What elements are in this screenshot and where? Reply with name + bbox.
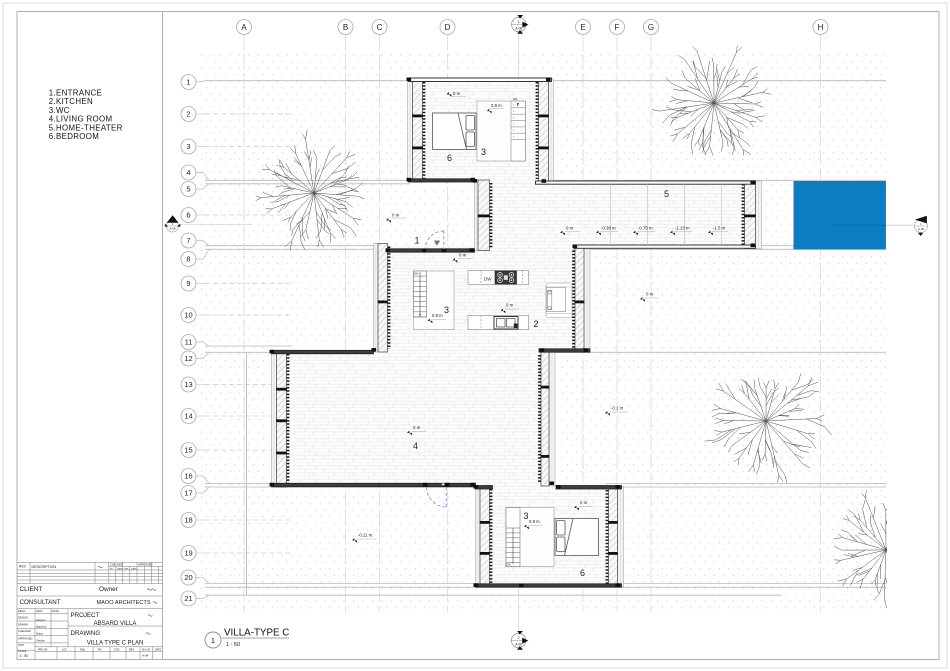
svg-text:1.ENTRANCE: 1.ENTRANCE — [49, 88, 102, 97]
svg-text:SIGN: SIGN — [36, 609, 42, 613]
svg-text:2.KITCHEN: 2.KITCHEN — [49, 97, 93, 106]
svg-text:D: D — [445, 23, 451, 32]
svg-text:16: 16 — [184, 472, 192, 481]
svg-text:7: 7 — [186, 236, 190, 245]
svg-text:APPROVED: APPROVED — [138, 563, 153, 567]
svg-text:2: 2 — [186, 110, 190, 119]
svg-text:DRAWING: DRAWING — [71, 630, 101, 637]
svg-text:MAOO ARCHITECTS: MAOO ARCHITECTS — [97, 600, 151, 606]
svg-text:3: 3 — [186, 142, 190, 151]
svg-text:4: 4 — [413, 441, 418, 451]
svg-text:12: 12 — [184, 354, 192, 363]
svg-text:4: 4 — [186, 168, 190, 177]
svg-text:0.9 m: 0.9 m — [432, 313, 443, 318]
svg-text:F: F — [615, 23, 620, 32]
svg-text:Approved: Approved — [36, 626, 47, 629]
svg-text:VILLA-TYPE C: VILLA-TYPE C — [224, 628, 289, 639]
svg-text:ABSARD VILLA: ABSARD VILLA — [94, 621, 137, 627]
svg-text:21: 21 — [184, 594, 192, 603]
svg-text:0 m: 0 m — [413, 425, 421, 430]
svg-text:0 m: 0 m — [453, 91, 461, 96]
svg-text:PROJECT: PROJECT — [71, 612, 100, 619]
svg-text:3: 3 — [481, 147, 486, 157]
svg-text:18: 18 — [184, 516, 192, 525]
svg-text:DW: DW — [484, 277, 492, 282]
svg-text:DN: DN — [414, 272, 418, 276]
svg-text:0 m: 0 m — [392, 213, 400, 218]
svg-text:13: 13 — [184, 380, 192, 389]
svg-text:Designer: Designer — [36, 619, 46, 622]
svg-text:A-08: A-08 — [918, 227, 924, 231]
svg-text:5: 5 — [186, 185, 190, 194]
svg-text:CHECKED: CHECKED — [18, 629, 31, 633]
svg-text:A-08: A-08 — [170, 227, 176, 231]
svg-text:Owner: Owner — [99, 586, 119, 593]
svg-text:B: B — [343, 23, 348, 32]
svg-text:11: 11 — [185, 338, 193, 347]
svg-text:5: 5 — [664, 189, 669, 199]
svg-text:2: 2 — [534, 319, 539, 329]
svg-text:6.BEDROOM: 6.BEDROOM — [49, 132, 100, 141]
svg-text:PH: PH — [98, 648, 102, 651]
svg-text:1: 1 — [186, 78, 190, 87]
svg-text:6: 6 — [580, 568, 585, 578]
svg-text:2: 2 — [518, 636, 520, 640]
svg-text:DN: DN — [513, 97, 517, 101]
svg-text:-0.1 m: -0.1 m — [611, 406, 624, 411]
svg-text:DESCRIPTION: DESCRIPTION — [32, 565, 57, 569]
svg-text:1 : 50: 1 : 50 — [20, 654, 29, 658]
svg-text:5.HOME-THEATER: 5.HOME-THEATER — [49, 123, 123, 132]
svg-text:0 m: 0 m — [566, 226, 574, 231]
svg-text:-0.38 m: -0.38 m — [601, 226, 616, 231]
svg-text:SH. NO: SH. NO — [142, 648, 150, 651]
svg-text:0 m: 0 m — [459, 252, 467, 257]
svg-text:-1.5 m: -1.5 m — [713, 226, 726, 231]
svg-text:0 m: 0 m — [580, 500, 588, 505]
svg-text:A: A — [241, 23, 247, 32]
svg-text:CHECKED: CHECKED — [110, 563, 123, 567]
svg-text:14: 14 — [184, 412, 192, 421]
svg-text:COD: COD — [114, 648, 120, 651]
svg-text:VILLA TYPE C PLAN: VILLA TYPE C PLAN — [87, 641, 144, 647]
svg-text:3: 3 — [524, 511, 529, 521]
svg-text:A-04: A-04 — [142, 654, 149, 658]
svg-text:A-08: A-08 — [515, 643, 522, 647]
svg-text:1 : 50: 1 : 50 — [226, 642, 240, 648]
svg-text:0 m: 0 m — [506, 303, 514, 308]
svg-text:SCALE: SCALE — [18, 649, 27, 653]
svg-text:CLIENT: CLIENT — [20, 586, 43, 593]
svg-text:Checker: Checker — [36, 640, 45, 643]
svg-text:DATE: DATE — [155, 648, 162, 651]
svg-text:CHK: CHK — [124, 569, 129, 571]
svg-text:REV: REV — [129, 648, 134, 651]
svg-text:15: 15 — [184, 446, 192, 455]
svg-text:-1.13 m: -1.13 m — [675, 226, 690, 231]
svg-text:6: 6 — [186, 211, 190, 220]
svg-text:1: 1 — [415, 236, 420, 246]
svg-text:A-08: A-08 — [515, 27, 522, 31]
svg-text:E: E — [580, 23, 585, 32]
svg-text:DWL: DWL — [80, 648, 86, 651]
svg-text:LOC: LOC — [62, 648, 67, 651]
svg-text:4.LIVING ROOM: 4.LIVING ROOM — [49, 115, 113, 124]
svg-text:1: 1 — [518, 20, 520, 24]
svg-text:APPROVED: APPROVED — [18, 636, 33, 640]
svg-text:9: 9 — [186, 279, 190, 288]
svg-text:DATE: DATE — [131, 568, 137, 571]
svg-text:DATE: DATE — [117, 568, 123, 571]
svg-text:DN: DN — [507, 563, 511, 567]
svg-text:DRAWN: DRAWN — [18, 622, 28, 626]
svg-text:UNIT: UNIT — [18, 643, 24, 647]
svg-text:G: G — [648, 23, 654, 32]
svg-text:-0.75 m: -0.75 m — [638, 226, 653, 231]
svg-text:DESIGN: DESIGN — [18, 615, 28, 619]
svg-text:3.WC: 3.WC — [49, 106, 70, 115]
svg-text:8: 8 — [186, 255, 190, 264]
svg-text:PRO.NO: PRO.NO — [38, 648, 48, 651]
svg-text:20: 20 — [184, 573, 192, 582]
svg-text:1: 1 — [211, 636, 215, 645]
svg-text:17: 17 — [184, 489, 192, 498]
svg-text:CONSULTANT: CONSULTANT — [20, 599, 61, 606]
svg-text:REV.: REV. — [19, 565, 27, 569]
svg-text:H: H — [818, 23, 824, 32]
svg-text:6: 6 — [447, 153, 452, 163]
svg-text:0.9 m: 0.9 m — [491, 103, 502, 108]
svg-text:FIELD: FIELD — [18, 609, 25, 613]
svg-text:-0.11 m: -0.11 m — [358, 533, 373, 538]
svg-text:3: 3 — [444, 305, 449, 315]
svg-text:0 m: 0 m — [646, 292, 654, 297]
svg-text:DATE: DATE — [52, 609, 59, 613]
svg-text:C: C — [377, 23, 383, 32]
svg-text:Author: Author — [36, 633, 43, 636]
svg-text:19: 19 — [184, 549, 192, 558]
svg-text:10: 10 — [184, 311, 192, 320]
svg-text:0.9 m: 0.9 m — [529, 519, 540, 524]
